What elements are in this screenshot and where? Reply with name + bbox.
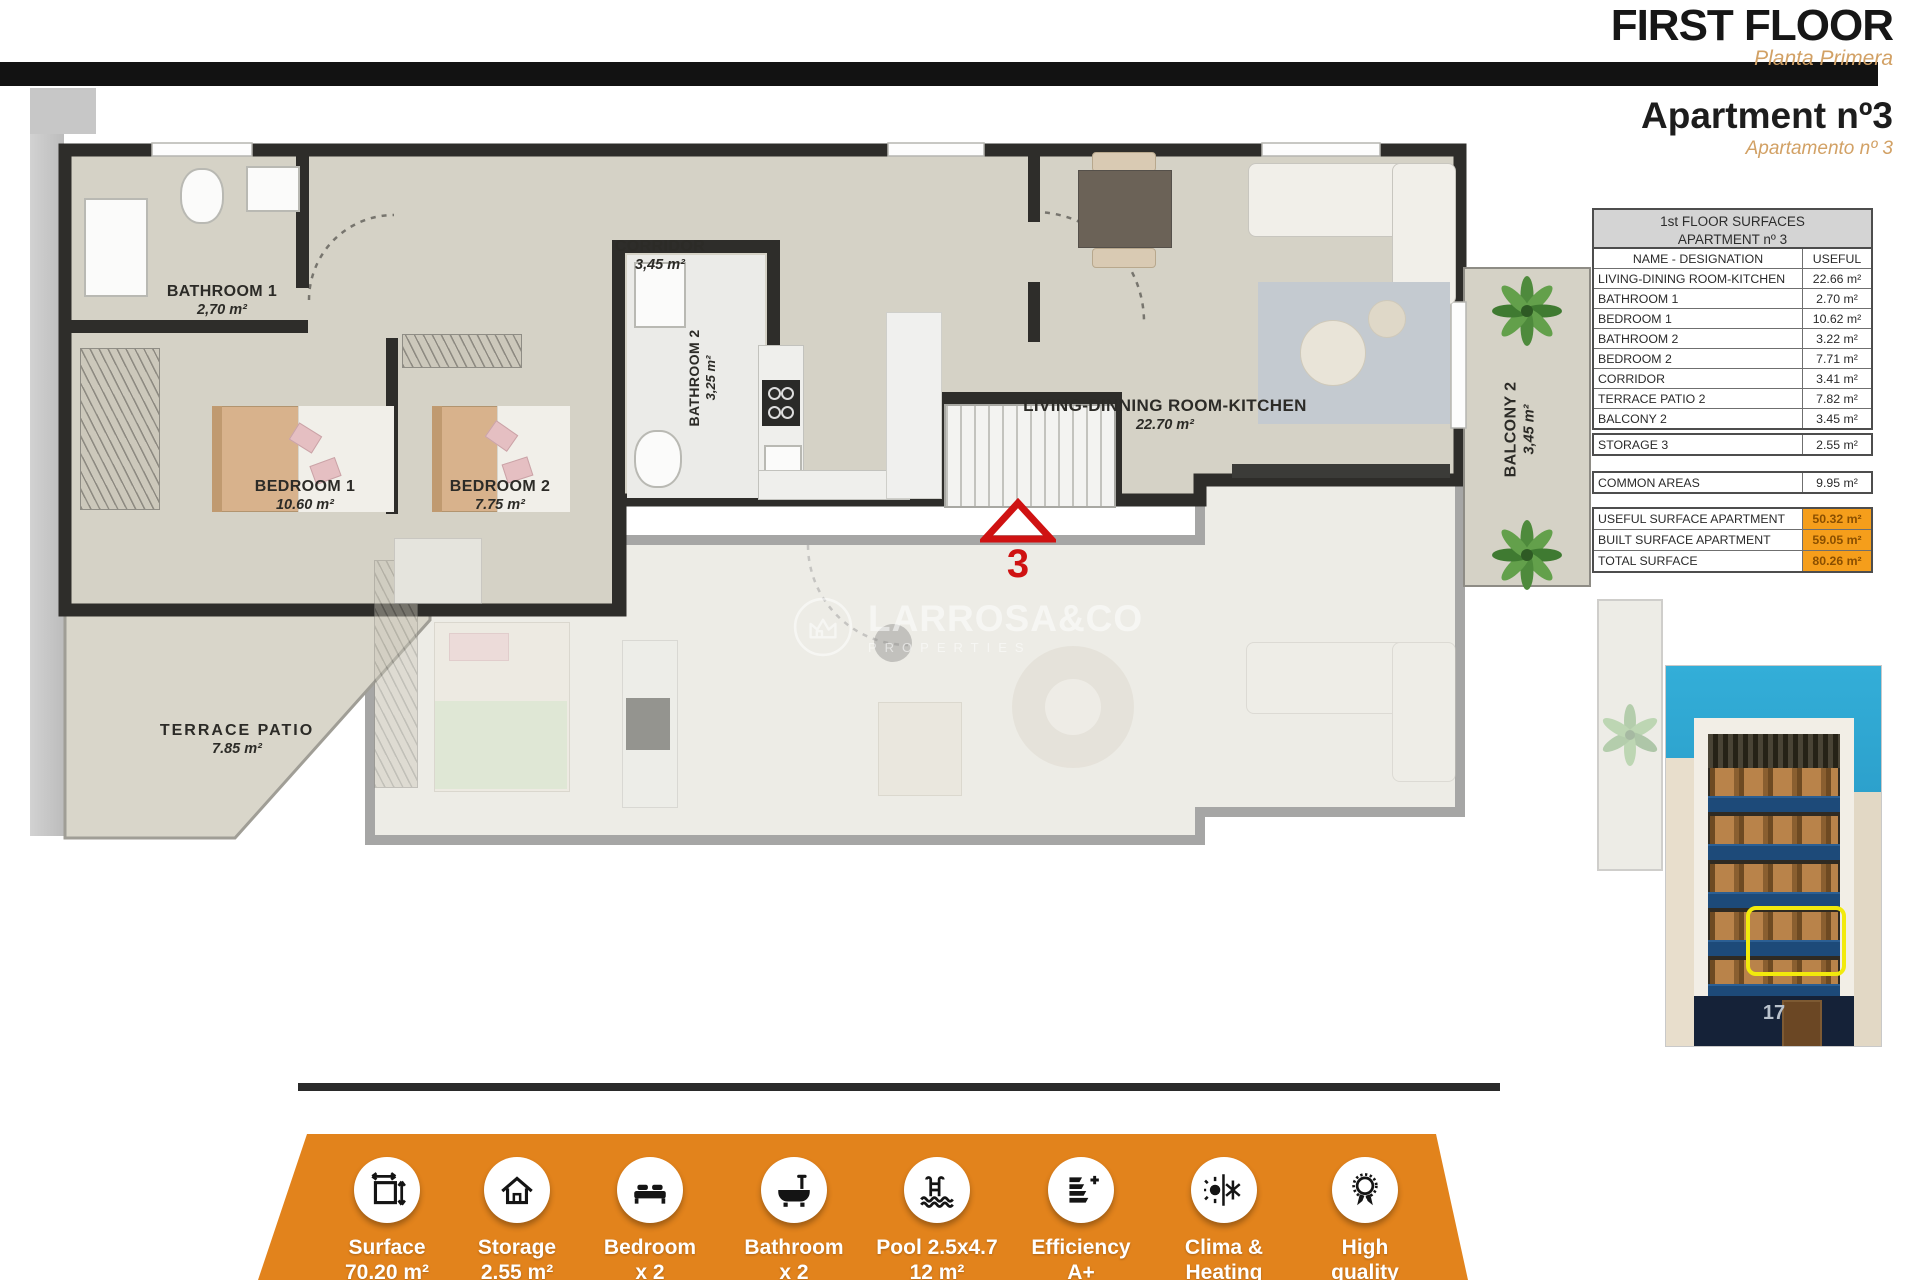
wardrobe bbox=[80, 348, 160, 510]
interior-wall bbox=[612, 240, 625, 612]
balcony-band bbox=[1708, 844, 1840, 860]
burner bbox=[768, 387, 781, 400]
apartment-heading: Apartment nº3 Apartamento nº 3 bbox=[1641, 97, 1893, 158]
coffee-table bbox=[1300, 320, 1366, 386]
table-row: CORRIDOR3.41 m² bbox=[1594, 368, 1871, 388]
burner bbox=[781, 387, 794, 400]
apartment-marker-icon bbox=[980, 498, 1056, 544]
washbasin bbox=[246, 166, 300, 212]
feature-label: Highquality bbox=[1280, 1236, 1450, 1280]
clima-icon bbox=[1191, 1157, 1257, 1223]
table-row: TERRACE PATIO 27.82 m² bbox=[1594, 388, 1871, 408]
watermark: LARROSA&CO PROPERTIES bbox=[792, 596, 1143, 658]
dining-chair bbox=[1092, 152, 1156, 172]
plant-icon bbox=[1492, 276, 1562, 346]
efficiency-icon bbox=[1048, 1157, 1114, 1223]
apartment-subtitle: Apartamento nº 3 bbox=[1641, 139, 1893, 158]
room-label-bedroom2: BEDROOM 2 7.75 m² bbox=[400, 478, 600, 513]
table-header-row: NAME - DESIGNATION USEFUL bbox=[1594, 249, 1871, 268]
room-label-terrace: TERRACE PATIO 7.85 m² bbox=[117, 722, 357, 757]
table-row: BEDROOM 110.62 m² bbox=[1594, 308, 1871, 328]
table-row: BALCONY 23.45 m² bbox=[1594, 408, 1871, 428]
room-label-living: LIVING-DINNING ROOM-KITCHEN 22.70 m² bbox=[965, 396, 1365, 433]
surfaces-table: NAME - DESIGNATION USEFUL LIVING-DINING … bbox=[1592, 247, 1873, 430]
pool-icon bbox=[904, 1157, 970, 1223]
header: FIRST FLOOR Planta Primera bbox=[1611, 4, 1893, 69]
dining-table bbox=[1078, 170, 1172, 248]
page-title: FIRST FLOOR bbox=[1611, 4, 1893, 48]
table-row: USEFUL SURFACE APARTMENT50.32 m² bbox=[1594, 509, 1871, 529]
apartment-marker-number: 3 bbox=[998, 542, 1038, 587]
room-label-bedroom1: BEDROOM 1 10.60 m² bbox=[205, 478, 405, 513]
faded-balcony bbox=[1598, 600, 1662, 870]
surface-icon bbox=[354, 1157, 420, 1223]
burner bbox=[768, 406, 781, 419]
features-bar: Surface70.20 m² Storage2.55 m² Bedroomx … bbox=[240, 1128, 1500, 1280]
table-row: COMMON AREAS9.95 m² bbox=[1594, 473, 1871, 492]
bed-icon bbox=[617, 1157, 683, 1223]
room-label-corridor: CORRIDOR 3,45 m² bbox=[560, 238, 760, 273]
side-table bbox=[1368, 300, 1406, 338]
flyer-page: FIRST FLOOR Planta Primera Apartment nº3… bbox=[0, 0, 1920, 1280]
neighbor-building bbox=[1666, 758, 1694, 1046]
storage-icon bbox=[484, 1157, 550, 1223]
page-subtitle: Planta Primera bbox=[1611, 48, 1893, 69]
dining-chair bbox=[1092, 248, 1156, 268]
stove bbox=[762, 380, 800, 426]
table-row: BUILT SURFACE APARTMENT59.05 m² bbox=[1594, 529, 1871, 550]
table-row: STORAGE 32.55 m² bbox=[1594, 435, 1871, 454]
toilet bbox=[180, 168, 224, 224]
bath-icon bbox=[761, 1157, 827, 1223]
plant-icon bbox=[1492, 520, 1562, 590]
table-row: TOTAL SURFACE80.26 m² bbox=[1594, 550, 1871, 571]
surfaces-table-title: 1st FLOOR SURFACES APARTMENT nº 3 bbox=[1592, 208, 1873, 250]
burner bbox=[781, 406, 794, 419]
interior-wall bbox=[1028, 150, 1040, 222]
watermark-tagline: PROPERTIES bbox=[868, 640, 1143, 655]
totals-box: USEFUL SURFACE APARTMENT50.32 m² BUILT S… bbox=[1592, 507, 1873, 573]
room-label-bathroom1: BATHROOM 1 2,70 m² bbox=[122, 283, 322, 318]
building-photo: 17 bbox=[1665, 665, 1882, 1047]
table-row: BEDROOM 27.71 m² bbox=[1594, 348, 1871, 368]
quality-icon bbox=[1332, 1157, 1398, 1223]
kitchen-island bbox=[886, 312, 942, 499]
street-number: 17 bbox=[1694, 1002, 1854, 1025]
bottom-divider-bar bbox=[298, 1083, 1500, 1091]
kitchen-sink bbox=[764, 445, 802, 473]
table-row: BATHROOM 12.70 m² bbox=[1594, 288, 1871, 308]
table-row: LIVING-DINING ROOM-KITCHEN22.66 m² bbox=[1594, 268, 1871, 288]
table-row: BATHROOM 23.22 m² bbox=[1594, 328, 1871, 348]
common-areas-box: COMMON AREAS9.95 m² bbox=[1592, 471, 1873, 494]
balcony-band bbox=[1708, 796, 1840, 812]
watermark-text: LARROSA&CO PROPERTIES bbox=[868, 600, 1143, 655]
larrosa-logo-icon bbox=[792, 596, 854, 658]
room-label-balcony: BALCONY 2 3,45 m² bbox=[1503, 355, 1538, 505]
neighbor-building bbox=[1853, 792, 1881, 1046]
floor-windows bbox=[1710, 864, 1838, 892]
wardrobe bbox=[402, 334, 522, 368]
tv-unit bbox=[1232, 464, 1450, 478]
toilet bbox=[634, 430, 682, 488]
storage-box: STORAGE 32.55 m² bbox=[1592, 433, 1873, 456]
apartment-title: Apartment nº3 bbox=[1641, 97, 1893, 134]
room-label-bathroom2: BATHROOM 2 3,25 m² bbox=[686, 303, 718, 453]
interior-wall bbox=[1028, 282, 1040, 342]
watermark-brand: LARROSA&CO bbox=[868, 600, 1143, 637]
interior-wall bbox=[65, 320, 308, 333]
floor-windows bbox=[1710, 768, 1838, 796]
floor-windows bbox=[1710, 816, 1838, 844]
roof-pergola bbox=[1708, 734, 1840, 768]
highlighted-apartment-box bbox=[1746, 906, 1846, 976]
